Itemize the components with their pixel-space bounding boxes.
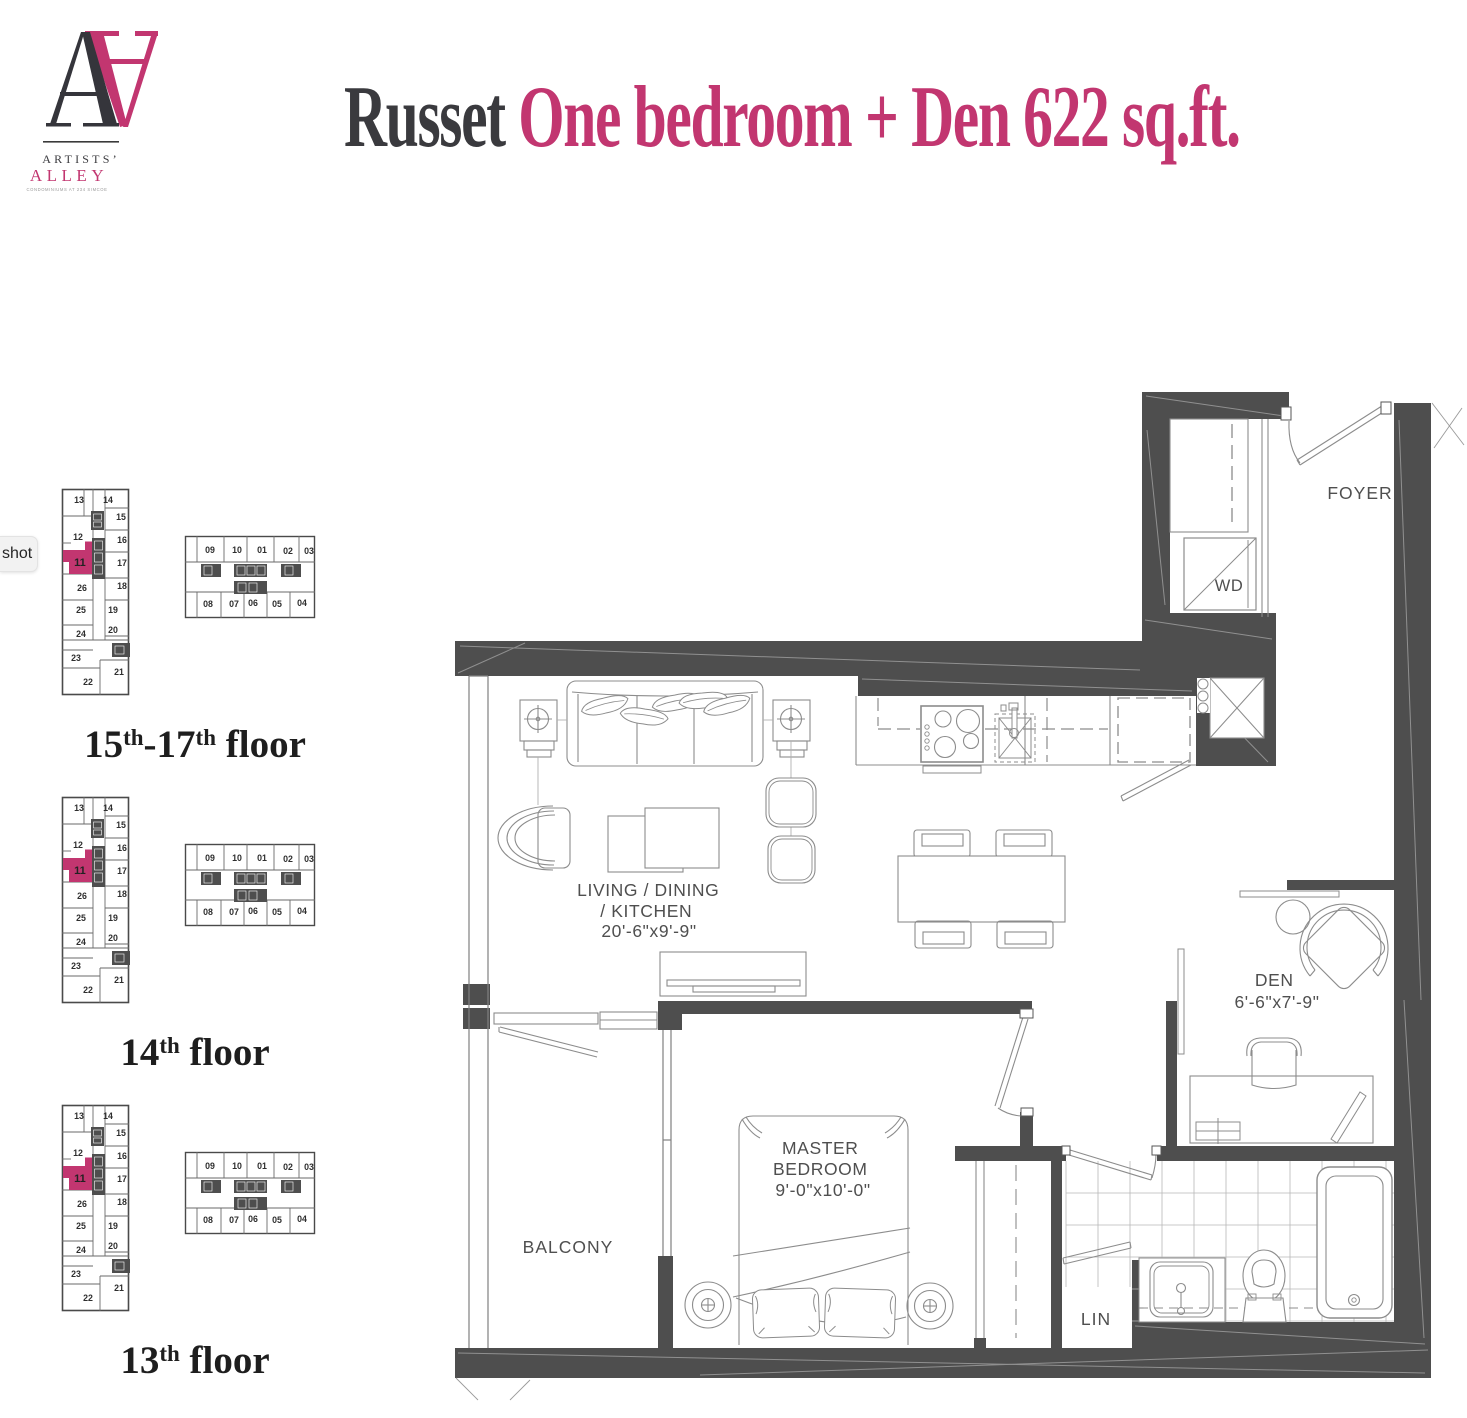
svg-text:LIN: LIN bbox=[1081, 1309, 1111, 1329]
svg-text:MASTER BEDROOM 9'-0"x10'-0": MASTER BEDROOM 9'-0"x10'-0" bbox=[773, 1138, 873, 1200]
svg-text:ALLEY: ALLEY bbox=[30, 166, 108, 185]
svg-text:CONDOMINIUMS AT 234 SIMCOE: CONDOMINIUMS AT 234 SIMCOE bbox=[26, 187, 107, 192]
svg-text:FOYER: FOYER bbox=[1327, 483, 1392, 503]
svg-text:DEN 6'-6"x7'-9": DEN 6'-6"x7'-9" bbox=[1234, 970, 1319, 1012]
svg-text:BALCONY: BALCONY bbox=[523, 1237, 614, 1257]
svg-text:LIVING / DINING / KITCHEN 20'-: LIVING / DINING / KITCHEN 20'-6"x9'-9" bbox=[577, 880, 725, 941]
svg-text:ARTISTS’: ARTISTS’ bbox=[42, 152, 120, 166]
svg-text:WD: WD bbox=[1215, 577, 1244, 595]
